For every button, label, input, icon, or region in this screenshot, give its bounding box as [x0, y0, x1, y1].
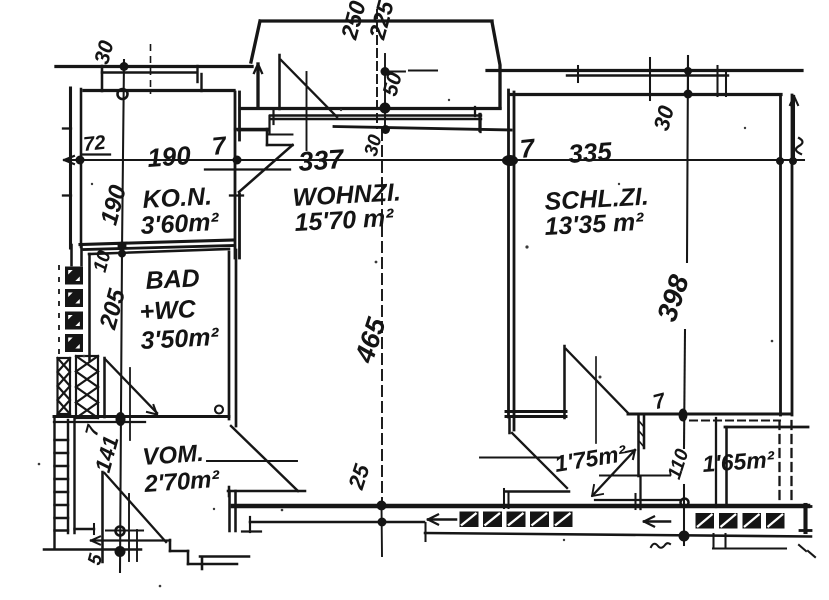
- svg-text:190: 190: [146, 140, 192, 173]
- svg-text:VOM.: VOM.: [142, 440, 205, 471]
- svg-text:72: 72: [82, 132, 106, 156]
- svg-text:13'35 m²: 13'35 m²: [544, 208, 645, 241]
- svg-text:15'70 m²: 15'70 m²: [294, 204, 395, 237]
- svg-text:1'65m²: 1'65m²: [702, 446, 777, 477]
- svg-text:335: 335: [567, 136, 613, 169]
- svg-text:3'60m²: 3'60m²: [140, 208, 220, 240]
- svg-text:337: 337: [297, 144, 346, 177]
- svg-text:3'50m²: 3'50m²: [140, 323, 220, 355]
- svg-text:+WC: +WC: [139, 295, 198, 326]
- svg-text:BAD: BAD: [145, 264, 201, 295]
- svg-text:2'70m²: 2'70m²: [143, 466, 222, 498]
